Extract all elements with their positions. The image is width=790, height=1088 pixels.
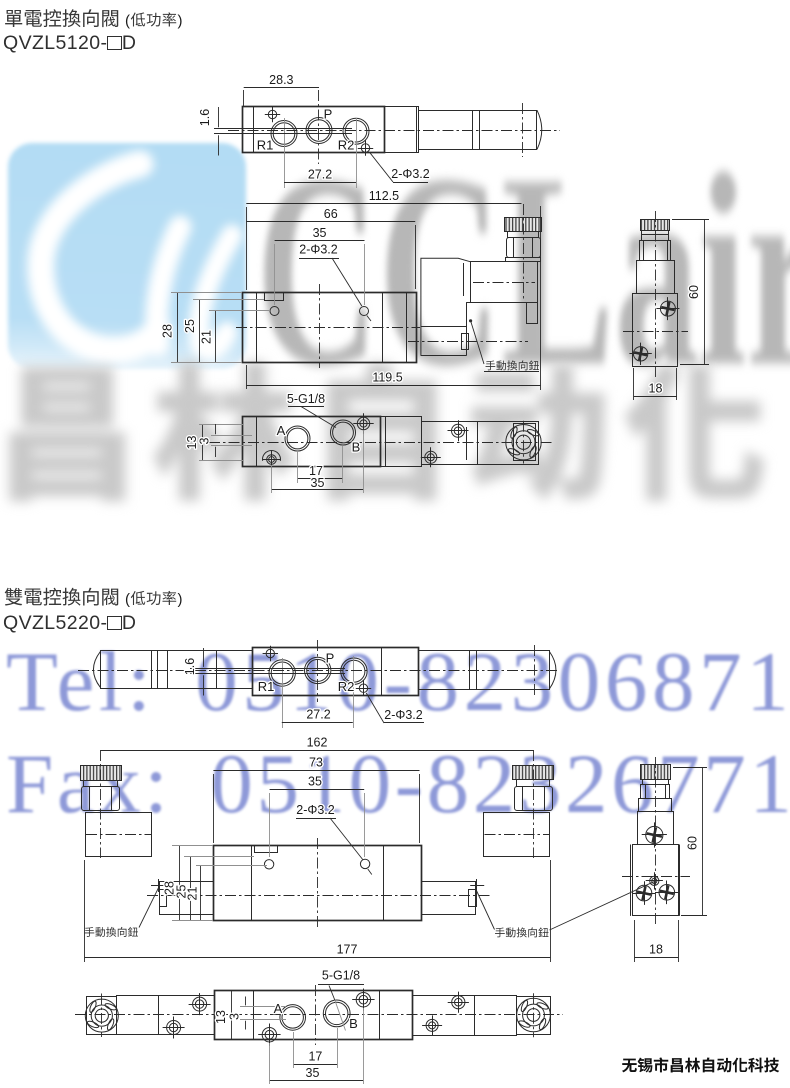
svg-text:60: 60: [686, 836, 700, 850]
svg-text:2-Φ3.2: 2-Φ3.2: [299, 243, 338, 257]
svg-text:27.2: 27.2: [308, 168, 332, 182]
svg-text:177: 177: [337, 943, 358, 957]
svg-text:): ): [178, 13, 183, 30]
svg-text:35: 35: [313, 226, 327, 240]
svg-text:R2: R2: [338, 138, 355, 153]
svg-text:119.5: 119.5: [372, 371, 402, 385]
svg-text:): ): [178, 591, 183, 608]
svg-text:73: 73: [309, 755, 323, 769]
svg-text:(: (: [125, 13, 130, 30]
svg-text:3: 3: [228, 1013, 242, 1020]
svg-text:35: 35: [308, 775, 322, 789]
svg-text:R1: R1: [258, 679, 275, 694]
svg-text:1.6: 1.6: [198, 109, 212, 126]
svg-text:25: 25: [183, 319, 197, 333]
svg-text:18: 18: [649, 943, 663, 957]
svg-text:112.5: 112.5: [369, 189, 399, 203]
svg-text:P: P: [326, 651, 335, 666]
svg-text:60: 60: [687, 285, 701, 299]
svg-text:18: 18: [649, 382, 663, 396]
svg-text:R1: R1: [257, 138, 274, 153]
svg-text:27.2: 27.2: [306, 708, 330, 722]
svg-text:162: 162: [307, 735, 328, 749]
svg-text:(: (: [125, 591, 130, 608]
svg-text:2-Φ3.2: 2-Φ3.2: [384, 708, 423, 722]
svg-text:R2: R2: [338, 679, 355, 694]
svg-text:5-G1/8: 5-G1/8: [287, 392, 325, 406]
svg-text:5-G1/8: 5-G1/8: [322, 969, 360, 983]
svg-text:1.6: 1.6: [183, 658, 197, 675]
svg-text:A: A: [274, 1001, 283, 1016]
svg-text:2-Φ3.2: 2-Φ3.2: [391, 167, 430, 181]
svg-text:28.3: 28.3: [269, 73, 293, 87]
svg-text:B: B: [352, 440, 361, 455]
svg-text:P: P: [324, 107, 333, 122]
svg-text:35: 35: [306, 1066, 320, 1080]
svg-text:66: 66: [324, 207, 338, 221]
svg-text:28: 28: [161, 324, 175, 338]
svg-text:3: 3: [198, 437, 212, 444]
svg-text:35: 35: [311, 476, 325, 490]
svg-text:21: 21: [185, 887, 199, 901]
svg-text:17: 17: [308, 1050, 322, 1064]
svg-text:2-Φ3.2: 2-Φ3.2: [296, 803, 335, 817]
svg-text:13: 13: [214, 1010, 228, 1024]
svg-text:21: 21: [200, 330, 214, 344]
svg-text:B: B: [349, 1016, 358, 1031]
svg-text:A: A: [277, 423, 286, 438]
